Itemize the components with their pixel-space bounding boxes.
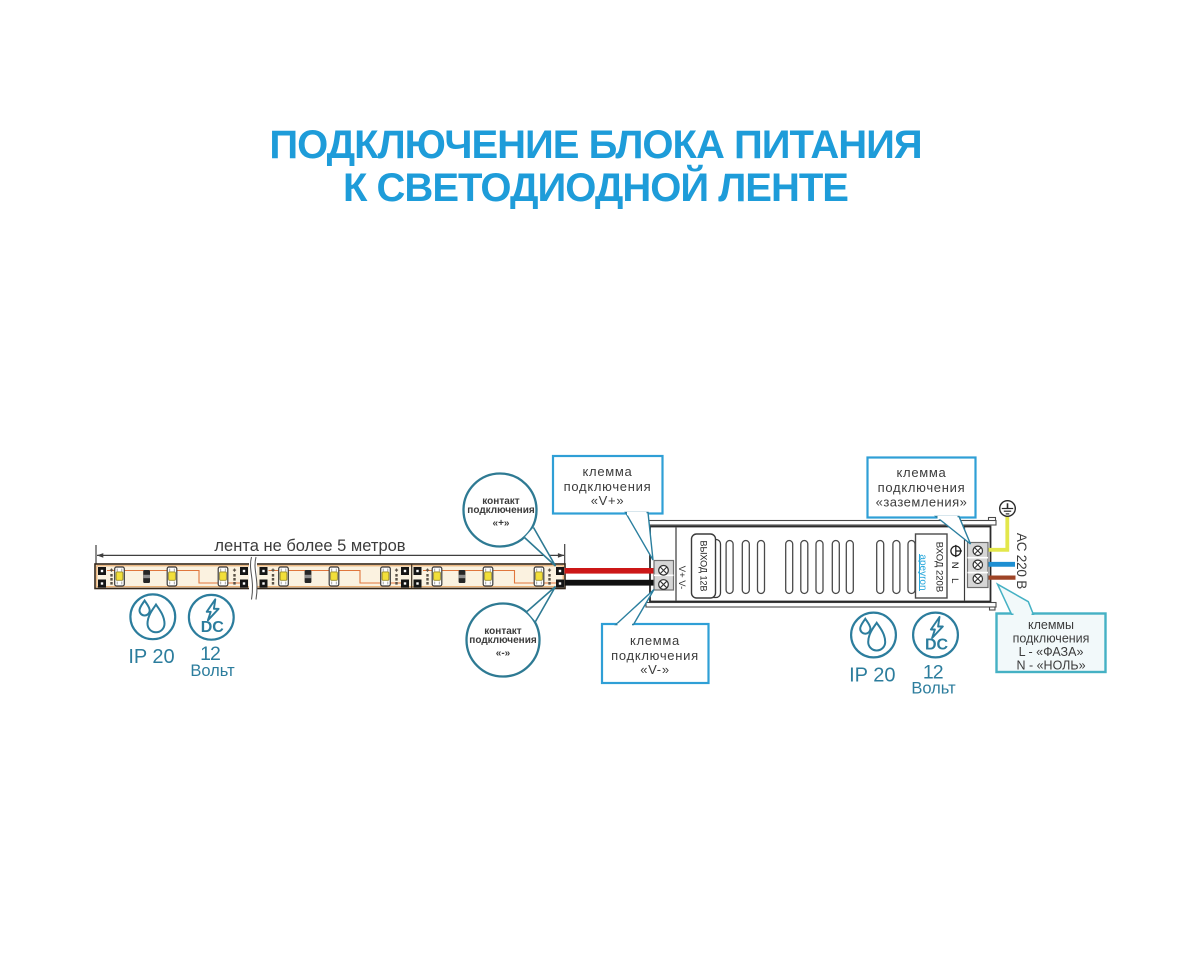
svg-text:L: L	[949, 578, 960, 583]
svg-text:apeyron: apeyron	[917, 554, 928, 590]
svg-text:подключения: подключения	[1013, 632, 1090, 646]
svg-text:клемма: клемма	[630, 633, 680, 648]
svg-text:«V-»: «V-»	[640, 662, 670, 677]
svg-text:N: N	[949, 562, 960, 569]
svg-text:подключения: подключения	[467, 505, 535, 516]
svg-text:«заземления»: «заземления»	[876, 495, 968, 510]
svg-text:IP 20: IP 20	[849, 665, 895, 687]
svg-text:клеммы: клеммы	[1028, 618, 1074, 632]
svg-text:клемма: клемма	[583, 464, 633, 479]
svg-text:ВХОД 220В: ВХОД 220В	[934, 542, 945, 592]
svg-text:подключения: подключения	[564, 479, 652, 494]
svg-text:«V+»: «V+»	[591, 493, 625, 508]
svg-text:ВЫХОД 12В: ВЫХОД 12В	[698, 540, 708, 591]
svg-text:подключения: подключения	[469, 635, 537, 646]
svg-text:V+ V-: V+ V-	[676, 566, 687, 590]
svg-text:подключения: подключения	[878, 480, 966, 495]
svg-text:«+»: «+»	[493, 518, 510, 529]
svg-text:«-»: «-»	[496, 648, 511, 659]
svg-text:L - «ФАЗА»: L - «ФАЗА»	[1019, 645, 1084, 659]
svg-text:клемма: клемма	[897, 465, 947, 480]
svg-text:лента не более 5 метров: лента не более 5 метров	[214, 537, 405, 555]
svg-text:Вольт: Вольт	[911, 680, 956, 698]
svg-text:IP 20: IP 20	[128, 646, 174, 668]
svg-text:Вольт: Вольт	[190, 662, 235, 680]
svg-text:подключения: подключения	[611, 648, 699, 663]
svg-text:AC 220 В: AC 220 В	[1014, 533, 1029, 589]
svg-text:DC: DC	[925, 637, 949, 654]
svg-text:DC: DC	[201, 619, 225, 636]
svg-text:N - «НОЛЬ»: N - «НОЛЬ»	[1016, 659, 1085, 673]
